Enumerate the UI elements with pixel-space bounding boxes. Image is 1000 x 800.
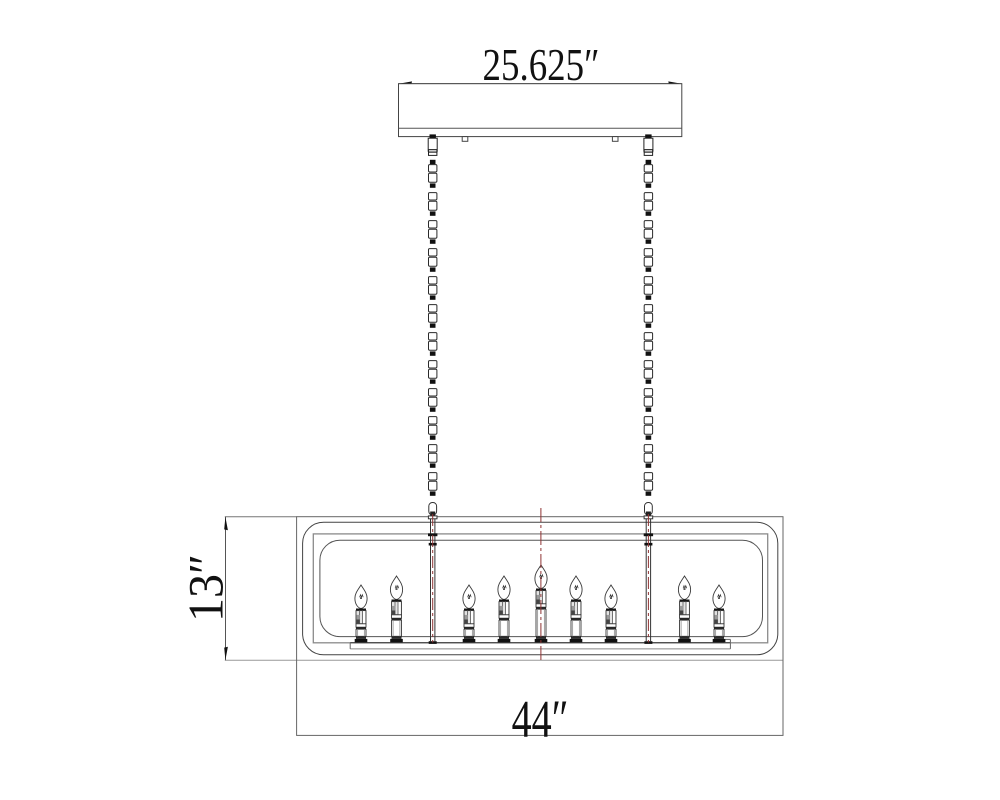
svg-text:13″: 13″ [179, 554, 234, 622]
svg-text:44″: 44″ [512, 690, 569, 749]
svg-text:25.625″: 25.625″ [483, 39, 600, 90]
